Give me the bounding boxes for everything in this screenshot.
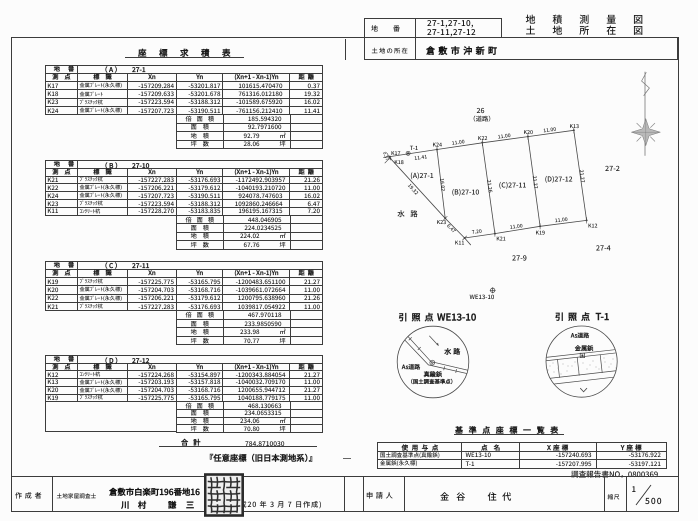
svg-text:6.47: 6.47 xyxy=(445,222,457,234)
svg-text:(B)27-10: (B)27-10 xyxy=(452,187,480,197)
svg-text:19.32: 19.32 xyxy=(406,182,420,196)
svg-text:K19: K19 xyxy=(536,229,546,237)
svg-text:27-4: 27-4 xyxy=(596,243,611,253)
svg-text:水路: 水路 xyxy=(397,209,423,220)
svg-text:K20: K20 xyxy=(524,128,534,136)
svg-text:K23: K23 xyxy=(437,218,447,226)
svg-text:11.41: 11.41 xyxy=(414,153,428,162)
svg-text:T-1: T-1 xyxy=(410,143,418,152)
svg-text:引照点: 引照点 xyxy=(399,311,438,324)
svg-text:16.02: 16.02 xyxy=(438,178,447,192)
svg-text:27-2: 27-2 xyxy=(605,164,620,174)
svg-text:(A)27-1: (A)27-1 xyxy=(410,170,434,180)
svg-text:7.20: 7.20 xyxy=(471,228,482,236)
svg-text:21.27: 21.27 xyxy=(531,175,540,189)
svg-text:K12: K12 xyxy=(588,222,598,230)
svg-text:K18: K18 xyxy=(394,158,404,166)
svg-text:(D)27-12: (D)27-12 xyxy=(545,174,573,184)
svg-text:K17: K17 xyxy=(391,149,401,157)
svg-text:21.27: 21.27 xyxy=(578,169,587,183)
svg-text:金属鋲: 金属鋲 xyxy=(574,343,594,352)
svg-text:(C)27-11: (C)27-11 xyxy=(499,179,527,189)
svg-text:As道路: As道路 xyxy=(570,331,589,340)
svg-text:K21: K21 xyxy=(496,235,506,243)
svg-text:水路: 水路 xyxy=(443,347,462,357)
svg-text:0.37: 0.37 xyxy=(381,151,390,162)
svg-text:引照点: 引照点 xyxy=(555,310,594,323)
svg-text:（道路）: （道路） xyxy=(469,114,494,123)
svg-text:（国土調査基準点）: （国土調査基準点） xyxy=(408,378,457,386)
svg-text:K11: K11 xyxy=(455,238,465,246)
svg-text:K24: K24 xyxy=(433,141,443,149)
svg-text:27-9: 27-9 xyxy=(512,254,527,264)
svg-text:K13: K13 xyxy=(570,122,580,130)
svg-text:As道路: As道路 xyxy=(401,362,420,371)
svg-text:T-1: T-1 xyxy=(596,309,610,323)
svg-text:21.26: 21.26 xyxy=(485,179,494,193)
svg-text:K22: K22 xyxy=(478,134,488,142)
svg-text:WE13-10: WE13-10 xyxy=(470,292,495,301)
svg-text:WE13-10: WE13-10 xyxy=(436,310,477,324)
